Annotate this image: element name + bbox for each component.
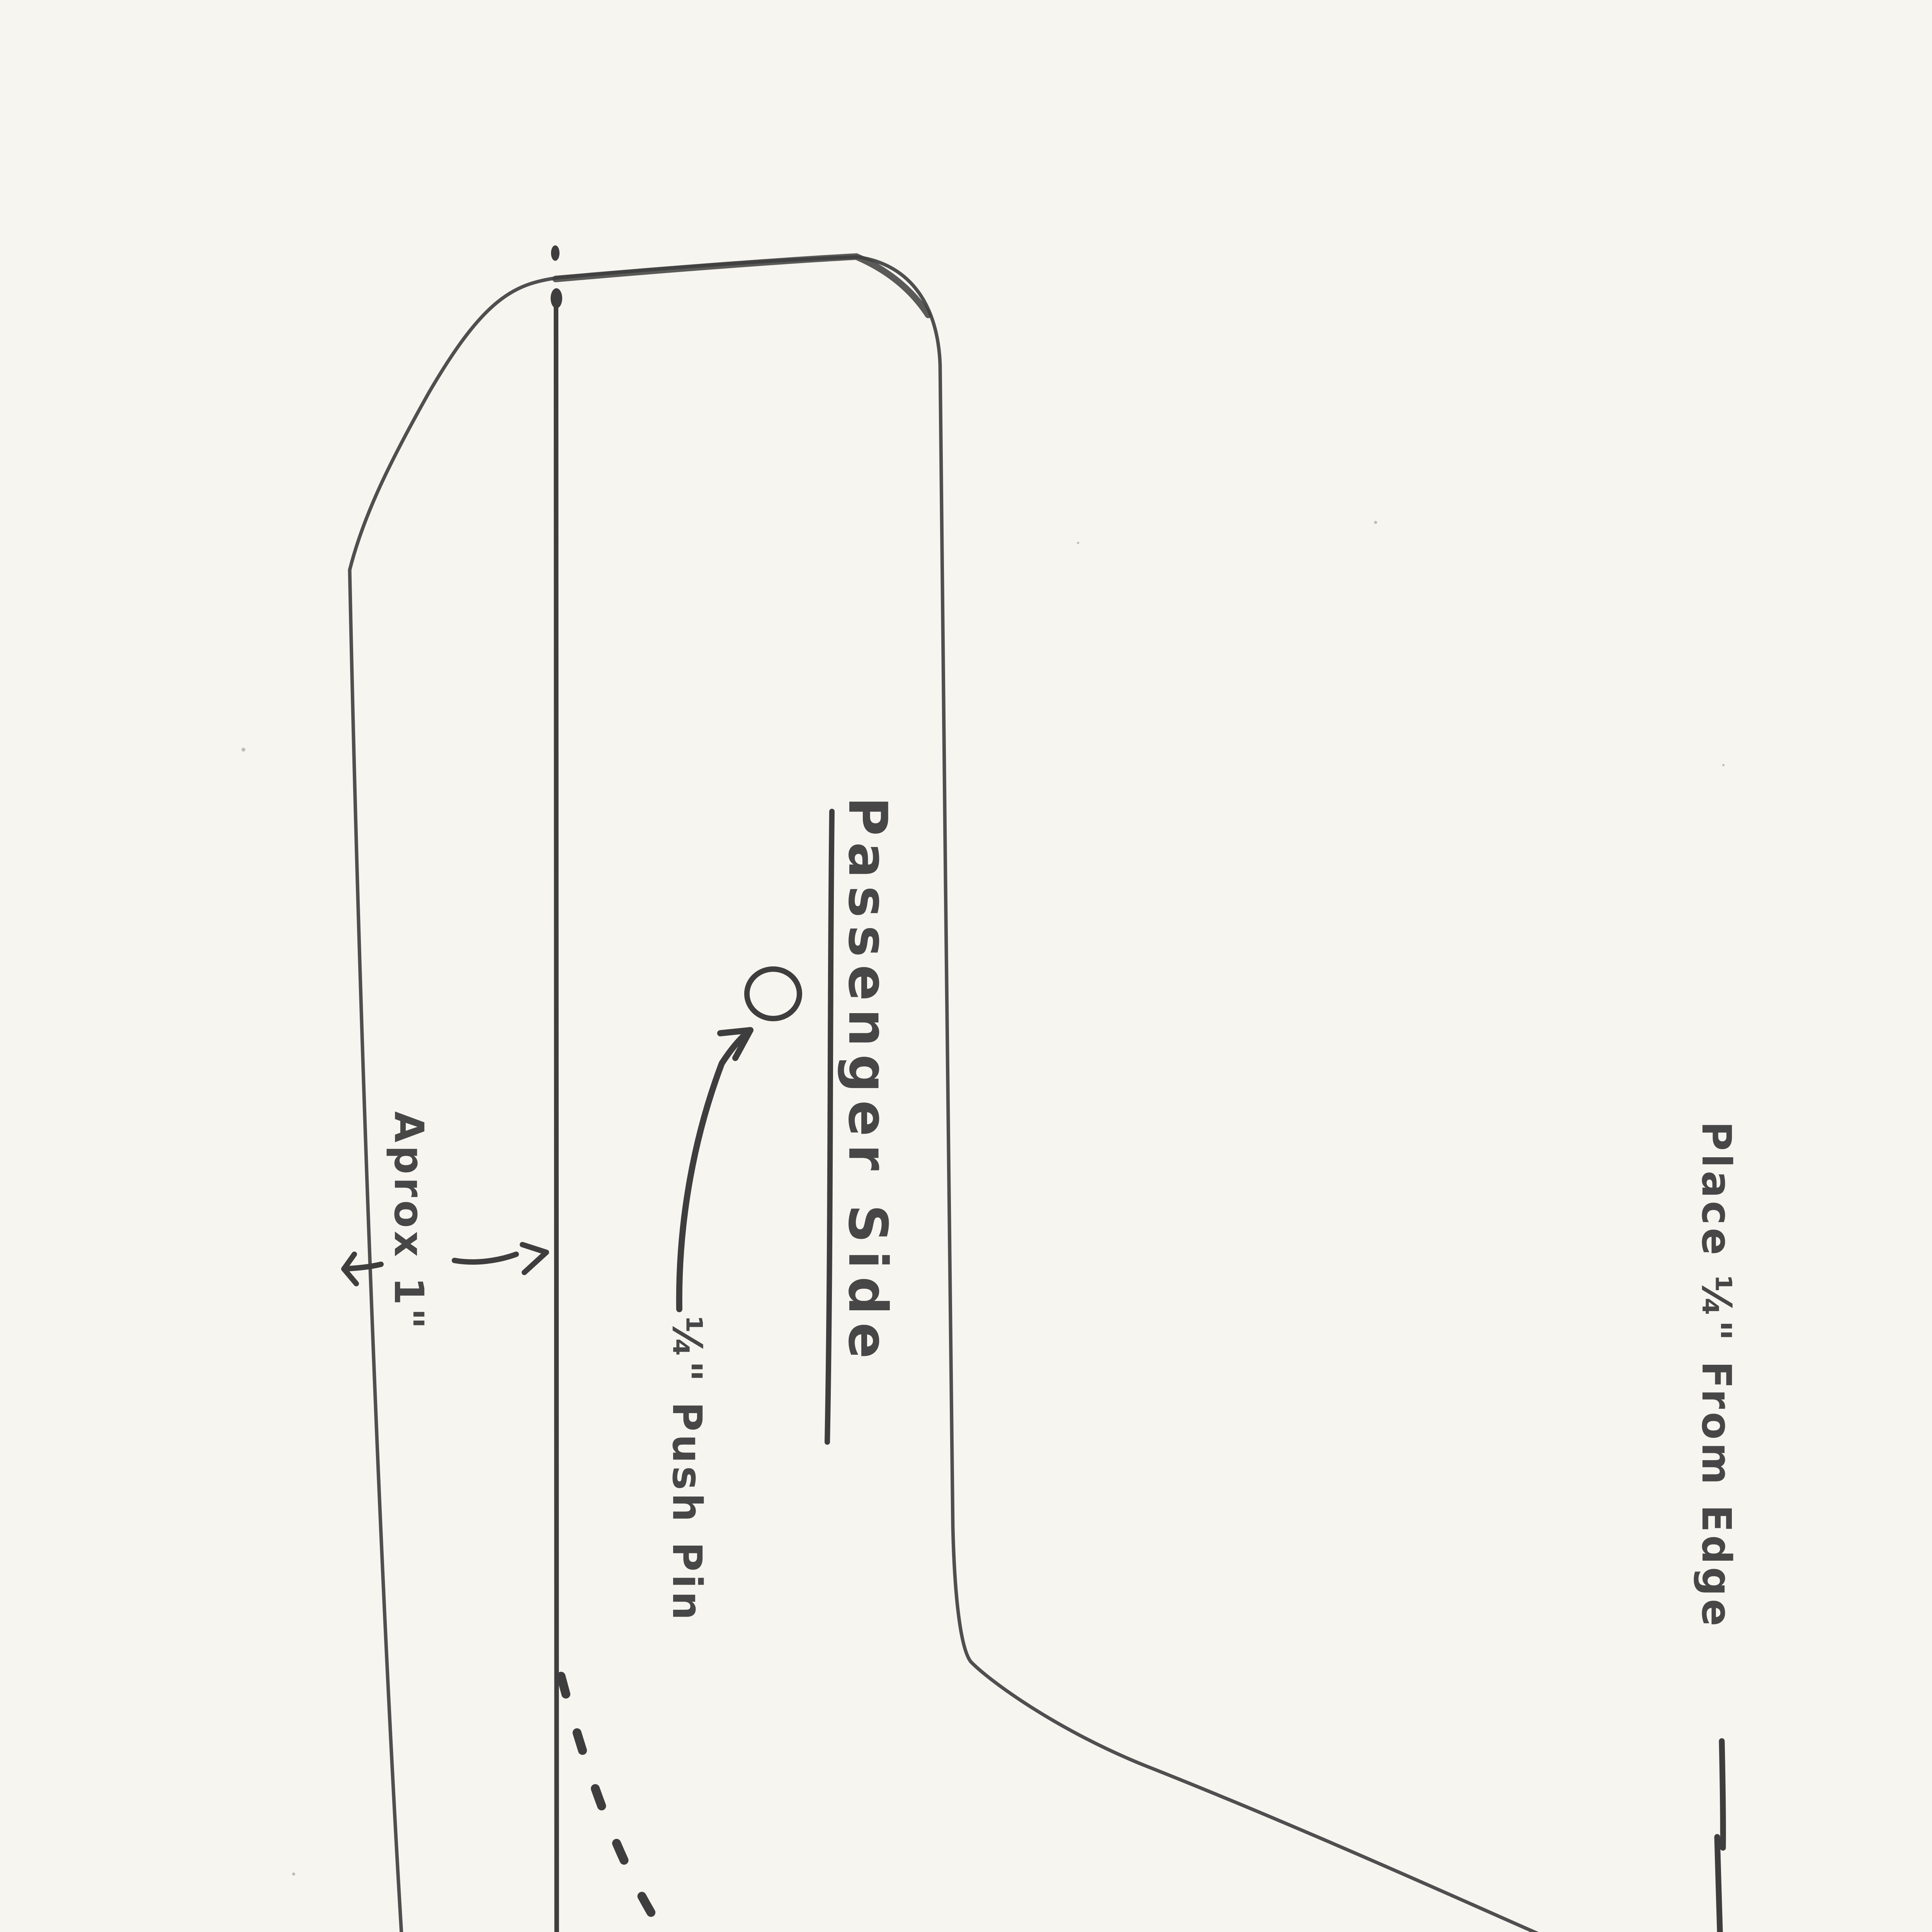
- passenger-side-label: Passenger Side: [837, 797, 899, 1366]
- dashed-trim-curve: [561, 1676, 1446, 1932]
- dimension-arrow-right: [454, 1245, 546, 1272]
- passenger-side-underline: [827, 811, 832, 1442]
- pushpin-hole-top: [747, 969, 799, 1019]
- template-drawing: Passenger Side ¼" Push Pin Aprox 1" Plac…: [0, 0, 1932, 1932]
- edge-leader-arrow: [1638, 1741, 1725, 1932]
- approx-gap-label: Aprox 1": [385, 1111, 432, 1332]
- pushpin-arrow: [679, 1030, 750, 1309]
- template-outline: [350, 257, 1597, 1932]
- dimension-arrow-right-shaft: [454, 1254, 516, 1262]
- scanned-template-sheet: Passenger Side ¼" Push Pin Aprox 1" Plac…: [0, 0, 1932, 1932]
- pushpin-note-label: ¼" Push Pin: [663, 1316, 711, 1623]
- alignment-dot-top: [551, 245, 560, 261]
- guide-line-ink-blob: [551, 288, 562, 308]
- fold-guide-line: [554, 292, 557, 1932]
- edge-leader-shaft: [1645, 1741, 1725, 1932]
- pushpin-arrow-shaft: [679, 1030, 750, 1309]
- paper-specks: [241, 521, 1725, 1932]
- edge-placement-label: Place ¼" From Edge: [1693, 1121, 1740, 1629]
- top-edge-overdraw: [556, 257, 928, 315]
- dimension-arrow-left: [344, 1254, 381, 1284]
- dimension-arrow-right-head: [522, 1245, 546, 1272]
